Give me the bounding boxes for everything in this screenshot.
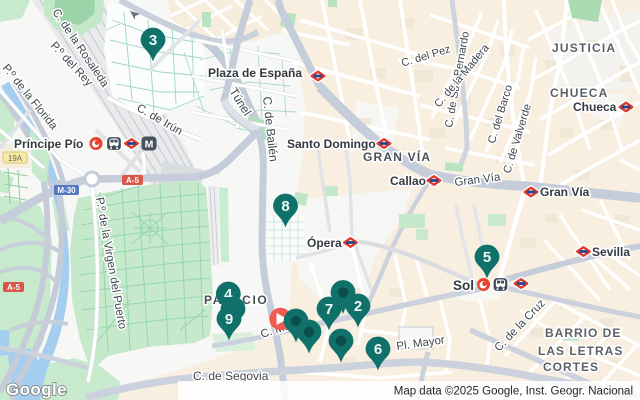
- svg-text:Sevilla: Sevilla: [592, 245, 630, 259]
- svg-text:Sol: Sol: [453, 278, 474, 293]
- svg-text:7: 7: [325, 301, 333, 318]
- svg-text:2: 2: [354, 298, 362, 315]
- svg-text:Chueca: Chueca: [573, 100, 617, 114]
- svg-text:Plaza de España: Plaza de España: [208, 66, 302, 80]
- svg-text:19A: 19A: [8, 154, 23, 163]
- svg-text:LAS LETRAS: LAS LETRAS: [538, 344, 623, 358]
- svg-text:M-30: M-30: [57, 186, 76, 195]
- svg-text:A-5: A-5: [126, 176, 139, 185]
- svg-text:Ópera: Ópera: [307, 235, 342, 250]
- svg-text:GRAN VÍA: GRAN VÍA: [363, 149, 431, 164]
- svg-text:Callao: Callao: [390, 174, 426, 188]
- svg-text:CORTES: CORTES: [543, 360, 599, 374]
- svg-text:Map data ©2025 Google, Inst. G: Map data ©2025 Google, Inst. Geogr. Naci…: [394, 386, 633, 398]
- svg-text:BARRIO DE: BARRIO DE: [545, 326, 621, 340]
- svg-text:Google: Google: [6, 380, 67, 399]
- svg-text:Príncipe Pío: Príncipe Pío: [14, 137, 83, 151]
- svg-text:A-5: A-5: [7, 283, 20, 292]
- svg-text:JUSTICIA: JUSTICIA: [552, 41, 616, 55]
- svg-text:3: 3: [149, 32, 157, 49]
- svg-text:C. de Segovia: C. de Segovia: [193, 369, 269, 383]
- svg-text:CHUECA: CHUECA: [550, 86, 609, 100]
- svg-text:Gran Vía: Gran Vía: [540, 185, 590, 199]
- svg-text:5: 5: [483, 249, 491, 266]
- svg-text:Santo Domingo: Santo Domingo: [287, 137, 376, 151]
- svg-text:6: 6: [374, 341, 382, 358]
- svg-text:8: 8: [281, 198, 289, 215]
- svg-text:9: 9: [225, 311, 233, 328]
